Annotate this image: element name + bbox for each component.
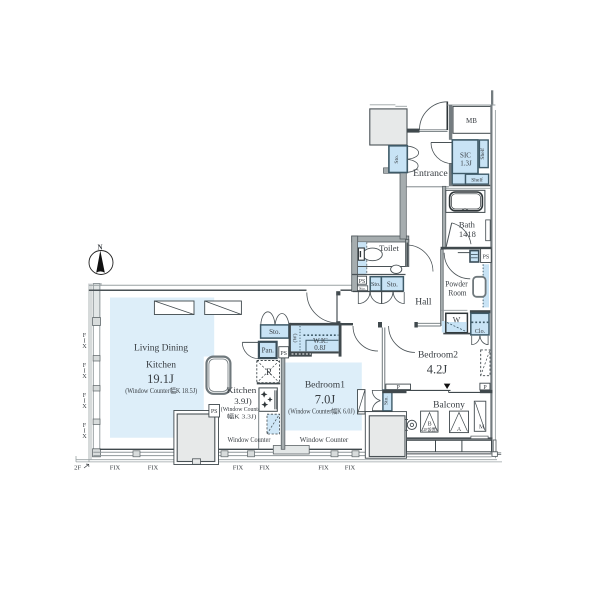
- svg-text:7.0J: 7.0J: [315, 392, 336, 406]
- svg-text:Sto.: Sto.: [387, 280, 398, 288]
- svg-text:R: R: [266, 367, 272, 377]
- svg-text:Pan.: Pan.: [262, 346, 275, 354]
- svg-text:Sto.: Sto.: [384, 396, 390, 405]
- svg-text:(Window Counter幅K 6.0J): (Window Counter幅K 6.0J): [288, 406, 354, 415]
- svg-text:PS: PS: [359, 279, 366, 285]
- svg-text:FIX: FIX: [318, 464, 329, 471]
- svg-text:Shelf: Shelf: [479, 148, 486, 160]
- svg-text:PS: PS: [483, 254, 490, 260]
- svg-text:M: M: [479, 424, 485, 430]
- svg-text:W: W: [453, 315, 461, 324]
- svg-text:X: X: [82, 373, 87, 380]
- svg-text:N: N: [97, 244, 102, 252]
- svg-text:Living Dining: Living Dining: [134, 344, 188, 354]
- svg-text:19.1J: 19.1J: [147, 372, 174, 386]
- svg-text:X: X: [82, 343, 87, 350]
- svg-text:Balcony: Balcony: [433, 401, 465, 411]
- svg-text:X: X: [82, 403, 87, 410]
- svg-text:A: A: [457, 427, 462, 433]
- svg-text:PS: PS: [280, 351, 287, 357]
- svg-text:Hall: Hall: [415, 298, 432, 308]
- svg-text:Bedroom1: Bedroom1: [305, 381, 345, 391]
- svg-text:Window Counter: Window Counter: [300, 437, 349, 444]
- svg-text:幅K 3.3J): 幅K 3.3J): [227, 412, 257, 420]
- svg-text:Sto.: Sto.: [371, 282, 381, 288]
- svg-text:(Window Counter幅K 18.5J): (Window Counter幅K 18.5J): [125, 386, 197, 395]
- svg-text:1.3J: 1.3J: [460, 159, 472, 167]
- svg-text:0.8J: 0.8J: [314, 344, 326, 352]
- svg-text:Window Counter: Window Counter: [228, 437, 272, 444]
- svg-text:(Window Counter: (Window Counter: [221, 406, 263, 413]
- svg-text:Sto.: Sto.: [359, 286, 366, 291]
- svg-text:X: X: [82, 433, 87, 440]
- svg-text:FIX: FIX: [148, 464, 159, 471]
- svg-text:Sto.: Sto.: [394, 154, 400, 163]
- svg-text:Shelf: Shelf: [471, 177, 483, 184]
- svg-text:FIX: FIX: [259, 464, 270, 471]
- svg-text:FIX: FIX: [233, 464, 244, 471]
- svg-text:Bedroom2: Bedroom2: [418, 351, 458, 361]
- svg-text:Entrance: Entrance: [413, 169, 448, 179]
- svg-text:Room: Room: [448, 288, 467, 298]
- svg-text:FIX: FIX: [345, 464, 356, 471]
- svg-text:(W): (W): [291, 333, 298, 342]
- svg-text:3.9J): 3.9J): [234, 396, 252, 406]
- svg-text:Kitchen: Kitchen: [146, 361, 176, 371]
- svg-text:Clo.: Clo.: [475, 329, 486, 335]
- svg-text:4.2J: 4.2J: [427, 362, 448, 376]
- svg-text:MB: MB: [466, 117, 477, 125]
- svg-text:Toilet: Toilet: [379, 243, 399, 253]
- svg-text:2F: 2F: [74, 464, 81, 471]
- svg-text:Kitchen: Kitchen: [227, 385, 258, 395]
- svg-text:SIC: SIC: [460, 152, 471, 160]
- svg-text:Sto.: Sto.: [269, 328, 280, 336]
- svg-text:PS: PS: [211, 409, 218, 415]
- svg-text:FIX: FIX: [110, 464, 121, 471]
- svg-text:(2F設置): (2F設置): [422, 426, 438, 433]
